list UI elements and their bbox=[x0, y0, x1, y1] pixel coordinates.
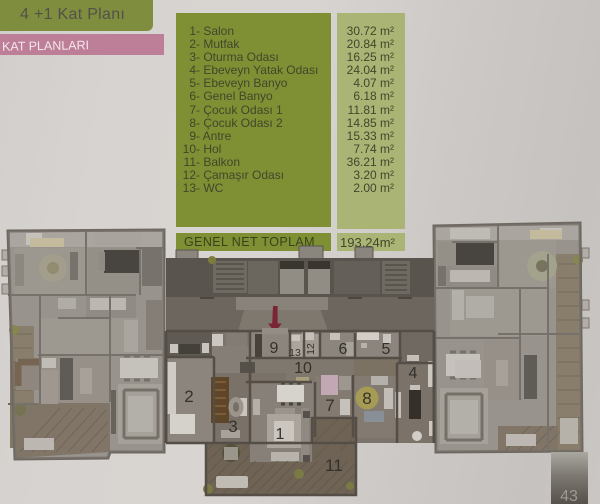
svg-text:1: 1 bbox=[276, 426, 285, 443]
svg-text:9: 9 bbox=[270, 340, 279, 357]
svg-text:8: 8 bbox=[362, 389, 371, 408]
svg-text:13: 13 bbox=[289, 347, 301, 359]
svg-text:2: 2 bbox=[184, 387, 193, 406]
svg-text:3: 3 bbox=[228, 417, 237, 436]
svg-text:5: 5 bbox=[382, 341, 391, 358]
svg-text:7: 7 bbox=[325, 396, 334, 415]
svg-text:12: 12 bbox=[305, 343, 317, 355]
svg-text:10: 10 bbox=[294, 360, 312, 377]
svg-text:6: 6 bbox=[339, 341, 348, 358]
svg-text:4: 4 bbox=[409, 365, 418, 382]
svg-text:43: 43 bbox=[560, 488, 578, 504]
svg-text:11: 11 bbox=[325, 456, 343, 475]
